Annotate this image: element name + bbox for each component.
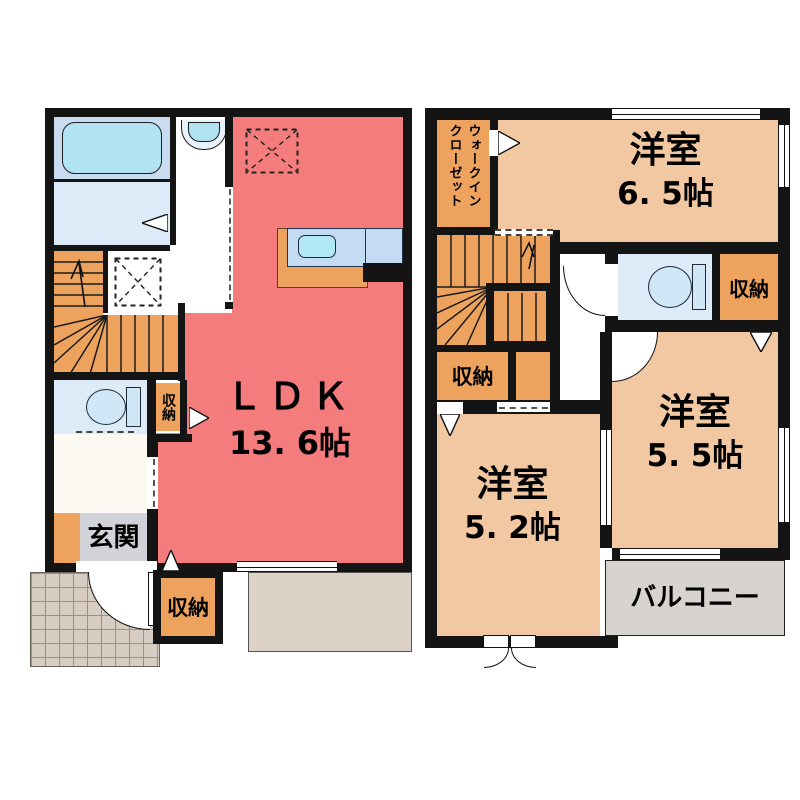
storage-hall-label: 収納 [158,393,178,421]
bedroom55-label-group: 洋室 5. 5帖 [598,392,792,475]
refrigerator-space-icon [245,128,299,174]
balcony-sliding-window-icon [620,548,720,560]
storage-wc-door-arrow-icon [750,332,772,352]
entrance-genkan: 玄関 [80,513,147,563]
casement-window-leaf [510,635,536,648]
wall [54,245,170,251]
wall [54,372,185,380]
bedroom52-size-label: 5. 2帖 [420,510,605,547]
storage-south-label: 収納 [167,592,209,622]
toilet-tank-icon [126,387,141,427]
balcony-label: バルコニー [630,583,759,614]
window-icon [612,108,760,120]
ldk-name-label: ＬＤＫ [204,375,376,419]
toilet-tank-icon-2f [692,264,706,310]
bedroom52-door-gap [437,402,463,414]
toilet-icon [86,389,126,425]
storage-stairs-label: 収納 [452,361,494,391]
toilet-room [54,380,147,434]
bedroom52-name-label: 洋室 [420,464,605,506]
closet52-sliding-door [497,402,550,412]
casement-swing-icon [484,648,509,668]
walk-in-closet-label: ウォークイン クローゼット [445,124,483,224]
bathroom-floor [54,181,170,245]
kitchen-sink-icon [298,235,336,258]
stairs-icon [54,251,103,315]
ldk-label-group: ＬＤＫ 13. 6帖 [204,375,376,462]
wall [170,117,176,245]
stairs-upper-icon [437,235,550,345]
wall [147,380,156,442]
entrance-label: 玄関 [87,523,139,554]
washbasin-bowl [188,122,220,142]
toilet-sliding-door [76,431,134,433]
washroom-sliding-door [225,187,233,302]
bedroom55-name-label: 洋室 [598,392,792,434]
washing-machine-space-icon [114,257,162,307]
ldk-size-label: 13. 6帖 [204,425,376,463]
wall [712,254,720,320]
shoe-cabinet [54,513,80,563]
walk-in-closet: ウォークイン クローゼット [437,120,490,227]
casement-swing-icon [511,648,536,668]
terrace [248,572,412,652]
bedroom52-label-group: 洋室 5. 2帖 [420,464,605,547]
kitchen-counter-divider [365,228,366,267]
bedroom65-name-label: 洋室 [563,130,768,172]
closet-52 [516,352,550,400]
wall [180,380,187,437]
ldk-room [233,117,403,563]
wall [508,352,516,400]
wic-door-arrow-icon [498,131,520,155]
toilet-room-2f [618,254,712,320]
casement-window-leaf [483,635,509,648]
ldk-terrace-window-icon [237,561,337,572]
hall-ldk-sliding-door [147,457,158,509]
storage-south-door-arrow-icon [162,550,180,571]
floorplan-canvas: 収納 玄関 [0,0,800,800]
wall [612,320,778,332]
storage-stairs: 収納 [437,352,508,400]
bath-partition [54,179,170,182]
storage-wc: 収納 [720,254,778,320]
wall [178,303,185,381]
wall [437,227,498,235]
bathtub-icon [62,122,162,174]
bathroom-door-arrow-icon [142,214,168,232]
bedroom65-size-label: 6. 5帖 [563,176,768,213]
toilet-icon-2f [648,266,692,308]
toilet-door-swing-icon [563,266,605,316]
kitchen-wall-stub [363,263,403,282]
wall [550,230,560,414]
front-door-gap [76,561,157,572]
storage-hall: 収納 [156,383,180,431]
balcony: バルコニー [605,560,785,636]
bedroom52-door-arrow-icon [440,414,460,436]
wall [437,345,550,352]
wall [147,434,192,442]
storage-south: 収納 [161,578,215,636]
stairs-winder-icon [54,315,178,374]
storage-south-walls: 収納 [153,570,223,644]
floor1-plan: 収納 玄関 [45,108,412,572]
wall [553,242,778,254]
wall [103,251,108,313]
storage-wc-label: 収納 [729,273,769,302]
bedroom55-size-label: 5. 5帖 [598,438,792,475]
hallway [54,434,147,513]
wall [425,108,437,648]
stair-opening-rail [495,229,553,236]
toilet-door-gap [605,264,618,316]
wic-door-gap [489,130,498,156]
bedroom65-label-group: 洋室 6. 5帖 [563,130,768,213]
window-icon [778,125,790,187]
